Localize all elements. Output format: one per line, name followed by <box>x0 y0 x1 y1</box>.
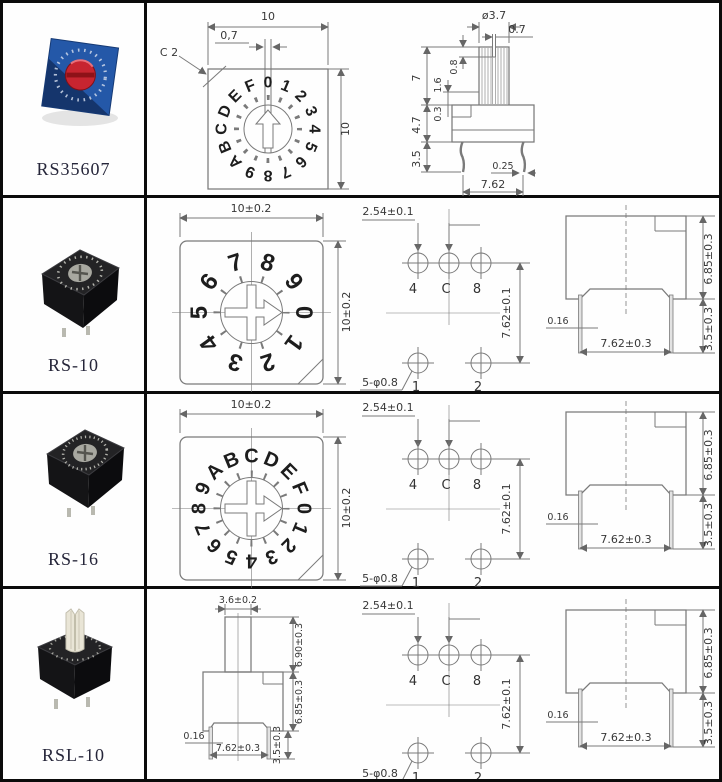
dial-char: A <box>225 151 246 172</box>
dial-char: 7 <box>278 162 293 181</box>
dial-char: D <box>215 103 235 120</box>
product-photo-rsl-10 <box>28 603 123 721</box>
dial-char: 9 <box>279 269 309 296</box>
dimension-label: 6.85±0.3 <box>702 627 715 678</box>
dimension-label: 0.25 <box>492 161 513 172</box>
dimension-label: 7.62±0.1 <box>500 678 513 729</box>
side-view-linework <box>546 401 715 549</box>
switch-body-black-shaft <box>38 609 112 709</box>
front-view-drawing-rs-16: 10±0.2 10±0.2 0 1 2 3 4 5 6 7 8 9 A B C … <box>148 397 363 589</box>
dimension-label: 3.6±0.2 <box>219 595 257 606</box>
dial-char: 3 <box>262 544 281 569</box>
pin-label: 2 <box>474 380 482 393</box>
dial-char: B <box>221 448 243 474</box>
pin-layout-drawing: 2.54±0.1 7.62±0.1 4 C 8 1 2 5-φ0.8 <box>358 397 538 589</box>
dimension-label: 3.5±0.3 <box>702 307 715 351</box>
dial-char: 7 <box>225 248 246 278</box>
side-view-linework <box>546 599 715 747</box>
dial-char: 5 <box>222 544 241 569</box>
pin-label: C <box>441 478 450 493</box>
dial-char: 5 <box>301 139 320 154</box>
dial-char: 2 <box>291 87 309 105</box>
dial-char: 2 <box>257 347 278 377</box>
product-photo-rs-10 <box>28 238 128 348</box>
side-view-drawing-rs35607: ø3.7 0.7 0.8 7 1.6 4.7 0.3 3.5 0.25 7.62 <box>393 7 608 197</box>
chamfer-label: C 2 <box>160 46 178 59</box>
shaft-side-view-drawing-rsl-10: 3.6±0.2 6.90±0.3 6.85±0.3 3.5±0.3 0.16 7… <box>183 593 353 782</box>
dimension-label: 7.62±0.3 <box>600 337 651 350</box>
dimension-label: 10 <box>261 10 275 23</box>
model-label: RS-10 <box>3 355 144 376</box>
dimension-label: 6.85±0.3 <box>702 233 715 284</box>
dimension-label: 10 <box>339 122 352 136</box>
dimension-label: 3.5±0.3 <box>702 503 715 547</box>
switch-body-black <box>42 250 119 337</box>
pin-label: C <box>441 282 450 297</box>
dial-char: D <box>261 448 283 474</box>
dial-char: F <box>287 479 312 499</box>
dimension-label: 4.7 <box>410 116 423 134</box>
dial-char: 6 <box>291 152 309 170</box>
dimension-label: 6.85±0.3 <box>294 680 305 724</box>
dial-char: 1 <box>279 330 309 357</box>
dimension-label: 7.62±0.3 <box>600 533 651 546</box>
dimension-label: 6.90±0.3 <box>294 623 305 667</box>
datasheet-table: RS35607 10 0,7 C 2 10 0 <box>0 0 722 782</box>
pin-label: 8 <box>473 478 481 493</box>
model-label: RS35607 <box>3 159 144 180</box>
dimension-label: 0.16 <box>183 731 204 742</box>
dimension-label: 7 <box>410 75 423 82</box>
side-view-drawing: 6.85±0.3 3.5±0.3 0.16 7.62±0.3 <box>543 397 722 589</box>
dimension-label: 10±0.2 <box>340 292 353 333</box>
pin-label: 4 <box>409 674 417 689</box>
dimension-label: 10±0.2 <box>231 202 272 215</box>
dial-char: 1 <box>278 77 293 96</box>
front-view-linework <box>172 213 346 392</box>
hole-note: 5-φ0.8 <box>362 376 398 389</box>
dimension-label: 10±0.2 <box>231 398 272 411</box>
rotor-arrow-up-icon <box>256 110 280 148</box>
switch-body-black <box>47 430 124 517</box>
pin-layout-drawing: 2.54±0.1 7.62±0.1 4 C 8 1 2 5-φ0.8 <box>358 595 538 782</box>
dial-char: 4 <box>194 329 224 356</box>
dimension-label: 2.54±0.1 <box>362 599 413 612</box>
dimension-label: 0.16 <box>547 512 568 523</box>
dimension-label: 2.54±0.1 <box>362 401 413 414</box>
pin-label: 8 <box>473 674 481 689</box>
model-label: RSL-10 <box>3 745 144 766</box>
dimension-label: 7.62±0.3 <box>216 743 260 754</box>
dial-char: 1 <box>287 519 312 538</box>
dimension-label: 0.16 <box>547 316 568 327</box>
dimension-label: 0.3 <box>433 106 444 121</box>
dial-char: 2 <box>277 534 300 557</box>
dial-char: 4 <box>306 125 323 134</box>
hole-note: 5-φ0.8 <box>362 572 398 585</box>
dial-char: 8 <box>263 167 272 184</box>
side-view-drawing: 6.85±0.3 3.5±0.3 0.16 7.62±0.3 <box>543 201 722 393</box>
dimension-label: 7.62±0.1 <box>500 287 513 338</box>
dimension-label: 1.6 <box>433 77 444 92</box>
dimension-label: 3.5±0.3 <box>272 726 283 764</box>
dimension-label: 6.85±0.3 <box>702 429 715 480</box>
dial-char: 9 <box>191 479 216 498</box>
side-view-linework <box>546 205 715 353</box>
switch-body-blue <box>42 39 119 116</box>
dial-char: C <box>214 123 231 135</box>
shaft-ivory <box>66 609 84 652</box>
dial-char: 4 <box>245 550 257 572</box>
pin-layout-drawing: 2.54±0.1 7.62±0.1 4 C 8 1 2 5-φ0.8 <box>358 201 538 393</box>
dimension-label: 0,7 <box>220 29 238 42</box>
dimension-label: ø3.7 <box>482 9 506 22</box>
dimension-label: 3.5±0.3 <box>702 701 715 745</box>
front-view-drawing-rs-10: 10±0.2 10±0.2 0 1 2 3 4 5 6 7 8 9 <box>148 201 363 393</box>
pin-label: 2 <box>474 576 482 589</box>
side-view-drawing: 6.85±0.3 3.5±0.3 0.16 7.62±0.3 <box>543 595 722 782</box>
hole-note: 5-φ0.8 <box>362 767 398 780</box>
dial-char: F <box>243 77 259 97</box>
dimension-label: 7.62±0.1 <box>500 483 513 534</box>
dial-char: 0 <box>290 306 317 319</box>
rotor-cross-arrow-icon <box>225 481 282 536</box>
dial-char: 0 <box>264 75 273 92</box>
dial-char: 6 <box>195 269 225 296</box>
pin-label: 4 <box>409 282 417 297</box>
pin-label: 1 <box>412 380 420 393</box>
rotor-cross-arrow-icon <box>225 285 282 340</box>
dial-char: 6 <box>203 534 226 557</box>
dimension-label: 3.5 <box>410 150 423 168</box>
dial-char: E <box>226 86 246 106</box>
front-view-linework <box>179 22 349 189</box>
front-view-drawing-rs35607: 10 0,7 C 2 10 0 1 2 3 4 5 6 7 8 9 A B C … <box>153 7 353 197</box>
dimension-label: 7.62 <box>481 178 506 191</box>
pin-label: 1 <box>412 576 420 589</box>
dimension-label: 0.16 <box>547 710 568 721</box>
model-label: RS-16 <box>3 549 144 570</box>
dial-char: 3 <box>225 347 246 377</box>
dimension-label: 7.62±0.3 <box>600 731 651 744</box>
product-photo-rs-16 <box>33 418 133 528</box>
dial-char: 9 <box>243 162 258 181</box>
row-divider <box>3 195 719 198</box>
dial-char: 5 <box>186 306 213 319</box>
pin-label: 1 <box>412 771 420 782</box>
dial-char: 0 <box>293 503 315 514</box>
pin-label: C <box>441 674 450 689</box>
dial-char: 7 <box>191 519 216 538</box>
dimension-label: 10±0.2 <box>340 488 353 529</box>
pin-label: 8 <box>473 282 481 297</box>
dial-char: 8 <box>189 503 211 514</box>
pin-label: 2 <box>474 771 482 782</box>
dial-char: B <box>215 138 235 155</box>
pin-label: 4 <box>409 478 417 493</box>
dial-char: 8 <box>257 248 278 278</box>
product-photo-rs35607 <box>25 23 135 151</box>
dial-char: 3 <box>301 104 320 119</box>
dial-char: E <box>276 459 301 484</box>
front-view-linework <box>172 409 346 588</box>
dial-char: C <box>244 446 258 468</box>
dimension-label: 0.7 <box>508 23 526 36</box>
dimension-label: 0.8 <box>449 59 460 74</box>
dimension-label: 2.54±0.1 <box>362 205 413 218</box>
